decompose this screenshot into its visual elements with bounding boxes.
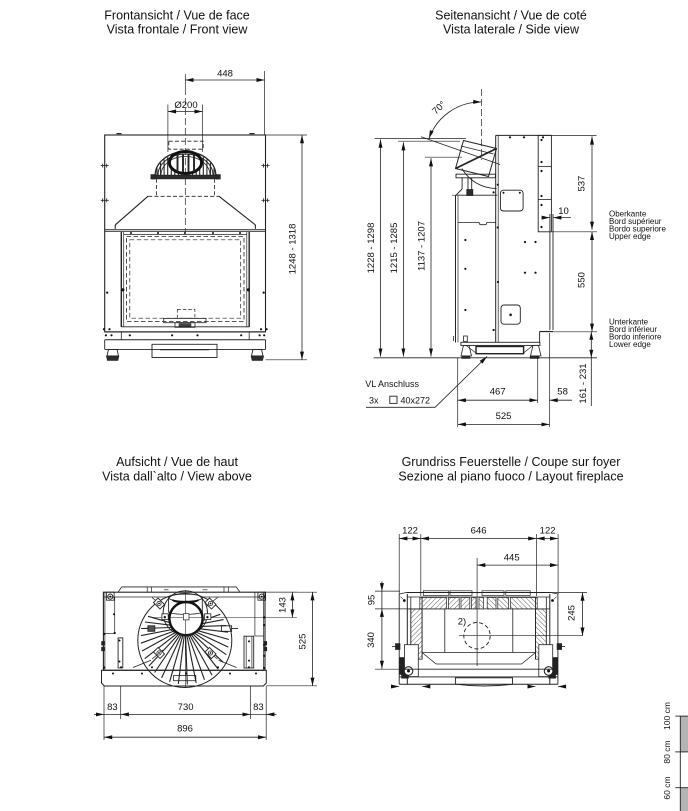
svg-text:Vista dall`alto / View above: Vista dall`alto / View above [102,470,252,484]
svg-text:340: 340 [366,632,377,648]
svg-text:Aufsicht / Vue de haut: Aufsicht / Vue de haut [116,455,238,469]
svg-text:525: 525 [297,634,308,650]
svg-text:Grundriss Feuerstelle / Coupe: Grundriss Feuerstelle / Coupe sur foyer [402,455,621,469]
svg-text:Frontansicht / Vue de face: Frontansicht / Vue de face [104,9,250,23]
svg-text:Vista frontale / Front view: Vista frontale / Front view [107,23,249,37]
svg-text:1228 - 1298: 1228 - 1298 [366,223,377,274]
svg-text:Ø200: Ø200 [174,100,197,111]
svg-text:83: 83 [107,702,118,713]
svg-text:896: 896 [177,724,193,735]
svg-text:122: 122 [402,526,418,537]
svg-text:Upper edge: Upper edge [609,232,651,241]
svg-text:445: 445 [504,552,520,563]
svg-text:95: 95 [367,595,378,606]
svg-text:467: 467 [490,387,506,398]
svg-text:3x: 3x [369,396,379,406]
svg-text:245: 245 [566,605,577,621]
svg-text:143: 143 [277,597,288,613]
svg-text:122: 122 [540,526,556,537]
svg-text:646: 646 [471,526,487,537]
svg-text:10: 10 [558,206,569,217]
svg-text:VL Anschluss: VL Anschluss [365,379,419,389]
svg-text:58: 58 [557,387,568,398]
svg-text:Vista laterale / Side view: Vista laterale / Side view [443,23,580,37]
svg-text:Seitenansicht / Vue de coté: Seitenansicht / Vue de coté [435,9,587,23]
svg-text:161 - 231: 161 - 231 [578,363,589,403]
svg-text:1215 - 1285: 1215 - 1285 [389,223,400,274]
svg-text:80 cm: 80 cm [662,740,672,763]
svg-text:40x272: 40x272 [401,396,431,406]
svg-text:730: 730 [178,702,194,713]
svg-text:448: 448 [217,69,233,80]
svg-text:Lower edge: Lower edge [609,340,651,349]
svg-text:1137 - 1207: 1137 - 1207 [417,221,428,271]
svg-text:525: 525 [496,411,512,422]
svg-text:1248 - 1318: 1248 - 1318 [288,224,299,275]
svg-text:Sezione al piano fuoco / Layou: Sezione al piano fuoco / Layout fireplac… [398,470,623,484]
svg-text:537: 537 [577,176,588,192]
svg-text:60 cm: 60 cm [662,776,672,799]
svg-text:83: 83 [253,702,264,713]
svg-text:2): 2) [458,617,466,628]
svg-text:100 cm: 100 cm [662,702,672,730]
svg-text:550: 550 [577,272,588,288]
